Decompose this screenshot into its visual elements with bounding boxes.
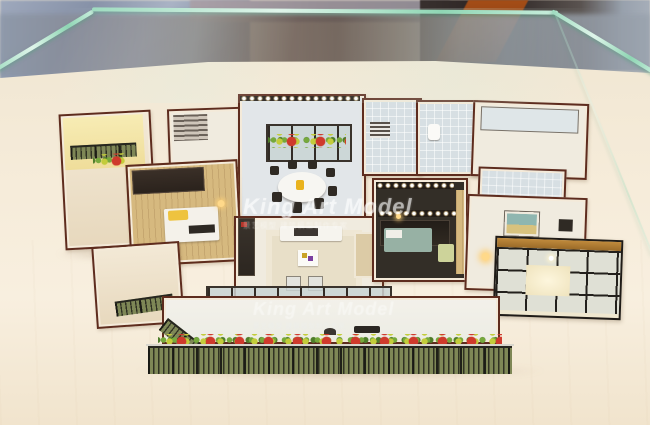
floor-lamp bbox=[481, 252, 489, 260]
bedside-lamp bbox=[217, 200, 224, 207]
striped-wardrobe bbox=[173, 114, 208, 141]
shower-fixture bbox=[370, 122, 390, 138]
sunroom bbox=[493, 236, 624, 320]
watermark-bottom-title: King Art Model bbox=[253, 299, 394, 320]
wall-painting bbox=[504, 211, 539, 236]
dresser bbox=[558, 219, 572, 231]
yellow-pillows bbox=[168, 210, 188, 221]
sunroom-lit-interior bbox=[525, 265, 570, 297]
table-centerpiece bbox=[296, 180, 304, 190]
watermark-bottom-subtitle: 景艺模型 建筑模型制作专家 bbox=[253, 320, 394, 330]
dining-chair bbox=[308, 160, 317, 169]
window-band bbox=[480, 106, 579, 133]
dining-chair bbox=[326, 168, 335, 177]
balcony-handrail bbox=[146, 344, 514, 346]
toilet bbox=[428, 124, 440, 140]
green-armchair bbox=[438, 244, 454, 262]
dining-chair bbox=[288, 160, 297, 169]
bed-throw bbox=[189, 224, 215, 233]
glass-front-sheen bbox=[0, 8, 650, 103]
watermark-center: King Art Model 景艺模型 建筑模型制作专家 bbox=[243, 194, 413, 231]
dining-flower-boxes bbox=[268, 134, 346, 148]
watermark-bottom: King Art Model 景艺模型 建筑模型制作专家 bbox=[253, 299, 394, 330]
table-deco-purple bbox=[308, 256, 313, 261]
bathroom-1 bbox=[362, 98, 422, 176]
wood-floor-strip bbox=[456, 190, 464, 274]
watermark-subtitle: 景艺模型 建筑模型制作专家 bbox=[243, 220, 413, 231]
watermark-title: King Art Model bbox=[243, 194, 413, 220]
front-balcony-railing bbox=[148, 346, 512, 374]
photo-architectural-model: King Art Model 景艺模型 建筑模型制作专家 King Art Mo… bbox=[0, 0, 650, 425]
table-deco-yellow bbox=[302, 253, 307, 258]
dining-chair bbox=[270, 166, 279, 175]
dark-bedroom-led-strip-back bbox=[376, 182, 454, 189]
dark-wardrobe bbox=[132, 167, 205, 195]
tower-red-flowers bbox=[93, 153, 128, 167]
bathroom-2 bbox=[416, 100, 478, 176]
teal-bed-pillows bbox=[386, 230, 402, 238]
